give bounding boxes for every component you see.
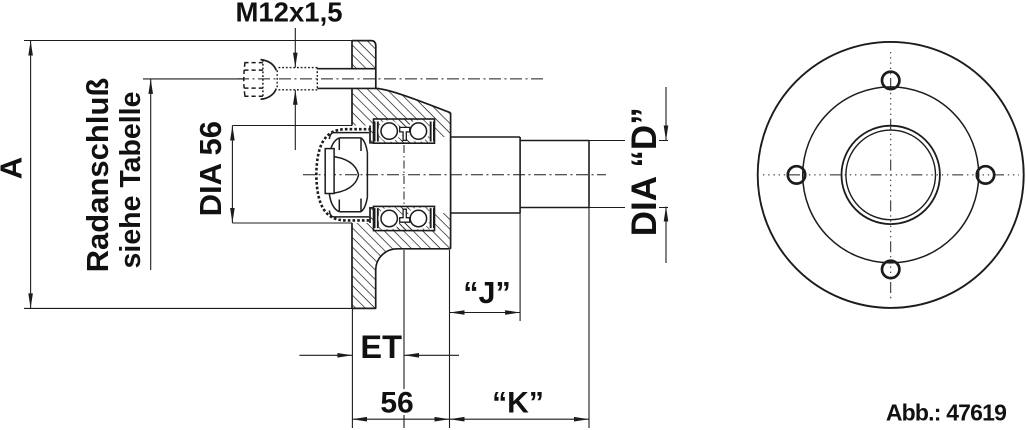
svg-text:M12x1,5: M12x1,5 (235, 0, 342, 27)
svg-text:A: A (0, 157, 29, 179)
svg-text:DIA “D”: DIA “D” (625, 107, 664, 236)
svg-text:siehe Tabelle: siehe Tabelle (115, 92, 147, 269)
svg-text:ET: ET (360, 329, 402, 365)
svg-text:Radanschluß: Radanschluß (80, 78, 115, 273)
svg-text:DIA 56: DIA 56 (193, 121, 228, 216)
svg-text:“J”: “J” (463, 276, 510, 310)
svg-text:56: 56 (380, 387, 413, 420)
svg-text:Abb.: 47619: Abb.: 47619 (886, 400, 1006, 426)
svg-text:“K”: “K” (492, 387, 544, 420)
